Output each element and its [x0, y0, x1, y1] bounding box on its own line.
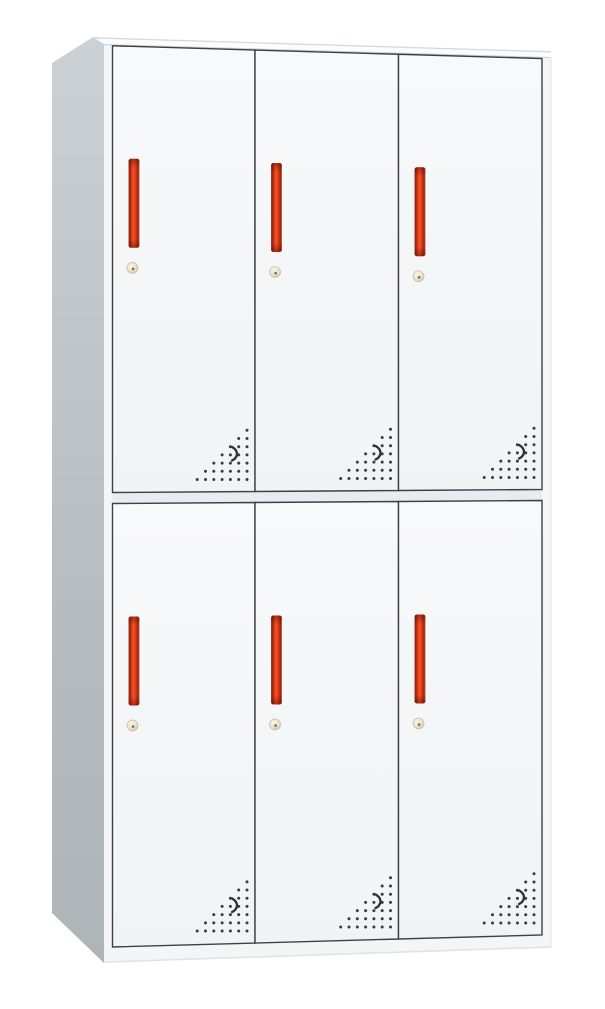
- vent-hole: [483, 476, 486, 479]
- vent-hole: [381, 926, 384, 929]
- door-lock-keyhole: [418, 276, 421, 279]
- vent-hole: [499, 905, 502, 908]
- vent-hole: [381, 436, 384, 439]
- vent-hole: [229, 905, 232, 908]
- vent-hole: [364, 461, 367, 464]
- vent-hole: [533, 872, 536, 875]
- vent-hole: [491, 913, 494, 916]
- vent-hole: [508, 922, 511, 925]
- vent-hole: [516, 905, 519, 908]
- vent-hole: [533, 451, 536, 454]
- vent-hole: [348, 917, 351, 920]
- vent-hole: [389, 469, 392, 472]
- vent-hole: [204, 470, 207, 473]
- vent-hole: [356, 477, 359, 480]
- vent-hole: [381, 893, 384, 896]
- vent-hole: [372, 901, 375, 904]
- vent-hole: [372, 452, 375, 455]
- vent-hole: [246, 470, 249, 473]
- vent-hole: [524, 881, 527, 884]
- vent-hole: [221, 930, 224, 933]
- vent-hole: [356, 469, 359, 472]
- vent-hole: [364, 901, 367, 904]
- vent-hole: [246, 462, 249, 465]
- vent-hole: [246, 897, 249, 900]
- vent-hole: [221, 470, 224, 473]
- vent-hole: [389, 477, 392, 480]
- vent-hole: [196, 930, 199, 933]
- vent-hole: [516, 451, 519, 454]
- vent-hole: [212, 462, 215, 465]
- vent-hole: [389, 909, 392, 912]
- page-background: [0, 0, 605, 1009]
- vent-hole: [372, 909, 375, 912]
- vent-hole: [212, 478, 215, 481]
- vent-hole: [524, 443, 527, 446]
- vent-hole: [237, 921, 240, 924]
- vent-hole: [533, 905, 536, 908]
- vent-hole: [389, 926, 392, 929]
- vent-hole: [499, 468, 502, 471]
- vent-hole: [339, 477, 342, 480]
- locker-door-r1c3: [399, 54, 543, 490]
- vent-hole: [246, 445, 249, 448]
- vent-hole: [246, 880, 249, 883]
- vent-hole: [516, 468, 519, 471]
- vent-hole: [524, 913, 527, 916]
- vent-hole: [499, 922, 502, 925]
- vent-hole: [372, 461, 375, 464]
- vent-hole: [229, 930, 232, 933]
- vent-hole: [212, 470, 215, 473]
- vent-hole: [364, 452, 367, 455]
- vent-hole: [246, 905, 249, 908]
- vent-hole: [356, 917, 359, 920]
- vent-hole: [221, 453, 224, 456]
- vent-hole: [364, 477, 367, 480]
- vent-hole: [229, 470, 232, 473]
- vent-hole: [246, 478, 249, 481]
- locker-door-r2c2: [255, 502, 399, 944]
- door-handle-shading: [415, 167, 426, 256]
- vent-hole: [356, 461, 359, 464]
- vent-hole: [533, 897, 536, 900]
- vent-hole: [372, 917, 375, 920]
- vent-hole: [533, 476, 536, 479]
- vent-hole: [221, 478, 224, 481]
- vent-hole: [516, 897, 519, 900]
- vent-hole: [381, 444, 384, 447]
- vent-hole: [246, 930, 249, 933]
- vent-hole: [389, 901, 392, 904]
- vent-hole: [339, 926, 342, 929]
- vent-hole: [508, 905, 511, 908]
- vent-hole: [212, 921, 215, 924]
- vent-hole: [237, 478, 240, 481]
- vent-hole: [364, 917, 367, 920]
- vent-hole: [204, 478, 207, 481]
- vent-hole: [491, 922, 494, 925]
- vent-hole: [533, 913, 536, 916]
- vent-hole: [533, 427, 536, 430]
- vent-hole: [229, 478, 232, 481]
- vent-hole: [221, 921, 224, 924]
- vent-hole: [212, 913, 215, 916]
- door-handle-shading: [271, 616, 282, 705]
- vent-hole: [221, 913, 224, 916]
- door-lock-keyhole: [132, 268, 135, 271]
- locker-door-r1c2: [255, 50, 399, 491]
- vent-hole: [229, 921, 232, 924]
- vent-hole: [364, 909, 367, 912]
- vent-hole: [237, 889, 240, 892]
- vent-hole: [381, 885, 384, 888]
- vent-hole: [389, 917, 392, 920]
- vent-hole: [524, 905, 527, 908]
- vent-hole: [389, 436, 392, 439]
- cabinet-side-panel: [52, 37, 104, 963]
- locker-cabinet-photo: [0, 0, 605, 1009]
- vent-hole: [491, 468, 494, 471]
- vent-hole: [246, 437, 249, 440]
- vent-hole: [499, 476, 502, 479]
- vent-hole: [389, 428, 392, 431]
- vent-hole: [246, 453, 249, 456]
- vent-hole: [237, 437, 240, 440]
- vent-hole: [389, 876, 392, 879]
- vent-hole: [508, 913, 511, 916]
- vent-hole: [246, 921, 249, 924]
- vent-hole: [204, 921, 207, 924]
- vent-hole: [229, 453, 232, 456]
- vent-hole: [246, 913, 249, 916]
- vent-hole: [516, 913, 519, 916]
- vent-hole: [491, 476, 494, 479]
- vent-hole: [524, 889, 527, 892]
- vent-hole: [389, 444, 392, 447]
- vent-hole: [524, 468, 527, 471]
- door-handle-shading: [415, 615, 426, 704]
- vent-hole: [237, 470, 240, 473]
- vent-hole: [524, 435, 527, 438]
- vent-hole: [348, 469, 351, 472]
- vent-hole: [356, 926, 359, 929]
- vent-hole: [389, 885, 392, 888]
- vent-hole: [221, 462, 224, 465]
- vent-hole: [372, 926, 375, 929]
- vent-hole: [372, 477, 375, 480]
- vent-hole: [516, 922, 519, 925]
- vent-hole: [389, 452, 392, 455]
- vent-hole: [516, 476, 519, 479]
- vent-hole: [246, 429, 249, 432]
- vent-hole: [499, 460, 502, 463]
- locker-door-r2c1: [113, 503, 256, 947]
- vent-hole: [533, 922, 536, 925]
- vent-hole: [364, 926, 367, 929]
- vent-hole: [348, 477, 351, 480]
- vent-hole: [381, 917, 384, 920]
- vent-hole: [204, 930, 207, 933]
- door-lock-keyhole: [132, 725, 135, 728]
- vent-hole: [237, 897, 240, 900]
- vent-hole: [381, 469, 384, 472]
- door-handle-shading: [129, 159, 140, 248]
- vent-hole: [237, 462, 240, 465]
- vent-hole: [508, 460, 511, 463]
- cabinet-svg: [0, 0, 605, 1009]
- vent-hole: [246, 889, 249, 892]
- vent-hole: [508, 897, 511, 900]
- vent-hole: [229, 462, 232, 465]
- door-lock-keyhole: [274, 272, 277, 275]
- vent-hole: [524, 476, 527, 479]
- door-lock-keyhole: [274, 724, 277, 727]
- vent-hole: [533, 881, 536, 884]
- vent-hole: [381, 477, 384, 480]
- vent-hole: [533, 468, 536, 471]
- vent-hole: [483, 922, 486, 925]
- vent-hole: [389, 461, 392, 464]
- vent-hole: [524, 460, 527, 463]
- vent-hole: [212, 930, 215, 933]
- vent-hole: [229, 913, 232, 916]
- locker-door-r1c1: [113, 46, 256, 493]
- vent-hole: [524, 922, 527, 925]
- vent-hole: [508, 468, 511, 471]
- vent-hole: [381, 461, 384, 464]
- vent-hole: [533, 435, 536, 438]
- vent-hole: [533, 460, 536, 463]
- vent-hole: [499, 913, 502, 916]
- vent-hole: [237, 445, 240, 448]
- vent-hole: [237, 913, 240, 916]
- vent-hole: [389, 893, 392, 896]
- door-lock-keyhole: [418, 723, 421, 726]
- vent-hole: [364, 469, 367, 472]
- vent-hole: [348, 926, 351, 929]
- vent-hole: [508, 451, 511, 454]
- vent-hole: [372, 469, 375, 472]
- locker-door-r2c3: [399, 501, 543, 940]
- vent-hole: [533, 443, 536, 446]
- door-handle-shading: [271, 163, 282, 252]
- vent-hole: [381, 909, 384, 912]
- vent-hole: [356, 909, 359, 912]
- vent-hole: [516, 460, 519, 463]
- door-handle-shading: [129, 617, 140, 706]
- vent-hole: [237, 930, 240, 933]
- vent-hole: [196, 478, 199, 481]
- vent-hole: [533, 889, 536, 892]
- vent-hole: [221, 905, 224, 908]
- vent-hole: [508, 476, 511, 479]
